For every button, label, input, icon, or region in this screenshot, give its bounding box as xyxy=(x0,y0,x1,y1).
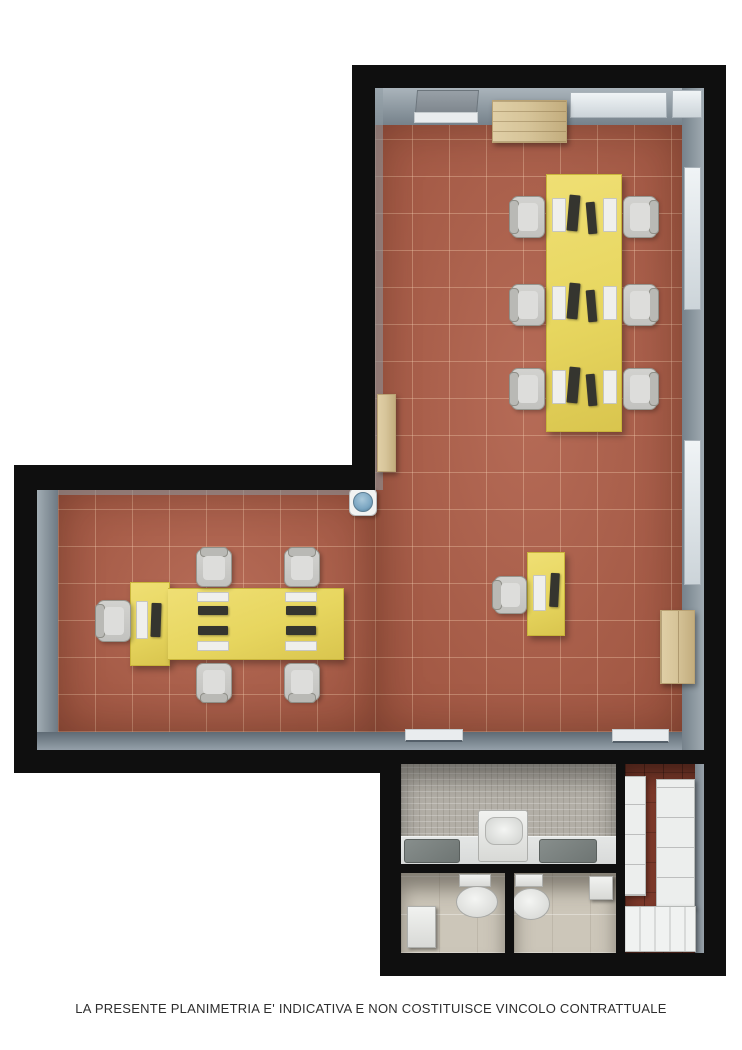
window-north-corner xyxy=(672,90,702,118)
keyboard xyxy=(603,286,617,320)
wallface-west xyxy=(36,488,58,750)
monitor xyxy=(286,606,316,615)
keyboard xyxy=(552,370,566,404)
monitor xyxy=(198,606,228,615)
wall-south xyxy=(14,750,726,764)
storage-room-side-strip xyxy=(695,764,704,953)
washbasin-bowl xyxy=(485,817,523,845)
radiator-unit-right xyxy=(656,779,695,909)
keyboard xyxy=(603,370,617,404)
radiator-stack-bottom xyxy=(623,906,696,952)
keyboard xyxy=(285,641,317,651)
disclaimer-caption: LA PRESENTE PLANIMETRIA E' INDICATIVA E … xyxy=(0,1001,742,1016)
office-chair xyxy=(623,196,657,238)
office-chair xyxy=(284,549,320,587)
office-chair xyxy=(97,600,131,642)
office-chair xyxy=(511,368,545,410)
monitor xyxy=(150,603,161,637)
toilet-bowl-right xyxy=(512,888,550,920)
wall-leftwing-north xyxy=(14,465,375,490)
office-chair xyxy=(284,663,320,701)
wall-bathroom-west xyxy=(380,750,401,976)
water-cooler-bottle xyxy=(353,492,373,512)
window-north xyxy=(570,92,667,118)
toilet-bowl-left xyxy=(456,886,498,918)
keyboard xyxy=(197,592,229,602)
wall-north xyxy=(352,65,726,88)
wooden-cabinet-east xyxy=(660,610,695,684)
wooden-pallet xyxy=(492,100,567,143)
office-chair xyxy=(494,576,527,614)
wall-inner-west-upper xyxy=(352,65,375,490)
monitor xyxy=(286,626,316,635)
office-chair xyxy=(623,368,657,410)
keyboard xyxy=(552,286,566,320)
office-chair xyxy=(196,549,232,587)
keyboard xyxy=(603,198,617,232)
window-east-lower xyxy=(684,440,701,585)
keyboard xyxy=(552,198,566,232)
wall-box xyxy=(589,876,613,900)
entrance-door-sill xyxy=(414,112,478,123)
toilet-tank-right xyxy=(515,874,543,887)
door-leaf-right xyxy=(612,729,669,743)
counter-sink-left xyxy=(404,839,460,863)
wall-bathroom-south xyxy=(380,953,726,976)
window-east-upper xyxy=(684,167,701,310)
storage-bin xyxy=(407,906,436,948)
monitor xyxy=(198,626,228,635)
monitor xyxy=(549,573,560,607)
entrance-door xyxy=(415,90,479,114)
office-chair xyxy=(623,284,657,326)
desk-left-room xyxy=(168,588,344,660)
door-leaf-left xyxy=(405,729,463,742)
floor-plan-page: LA PRESENTE PLANIMETRIA E' INDICATIVA E … xyxy=(0,0,742,1050)
keyboard xyxy=(533,575,546,611)
wooden-cabinet-corner xyxy=(377,394,396,472)
office-chair xyxy=(511,284,545,326)
wall-south-leftwing-thick xyxy=(14,764,380,773)
radiator-unit-left xyxy=(624,776,646,896)
office-chair xyxy=(196,663,232,701)
keyboard xyxy=(136,601,148,639)
counter-sink-right xyxy=(539,839,597,863)
wallface-south xyxy=(36,732,682,750)
keyboard xyxy=(285,592,317,602)
wall-east xyxy=(704,65,726,976)
wall-west xyxy=(14,465,37,773)
wall-bathroom-divider-vertical xyxy=(505,868,514,956)
keyboard xyxy=(197,641,229,651)
wall-storage-divider xyxy=(616,764,625,956)
office-chair xyxy=(511,196,545,238)
